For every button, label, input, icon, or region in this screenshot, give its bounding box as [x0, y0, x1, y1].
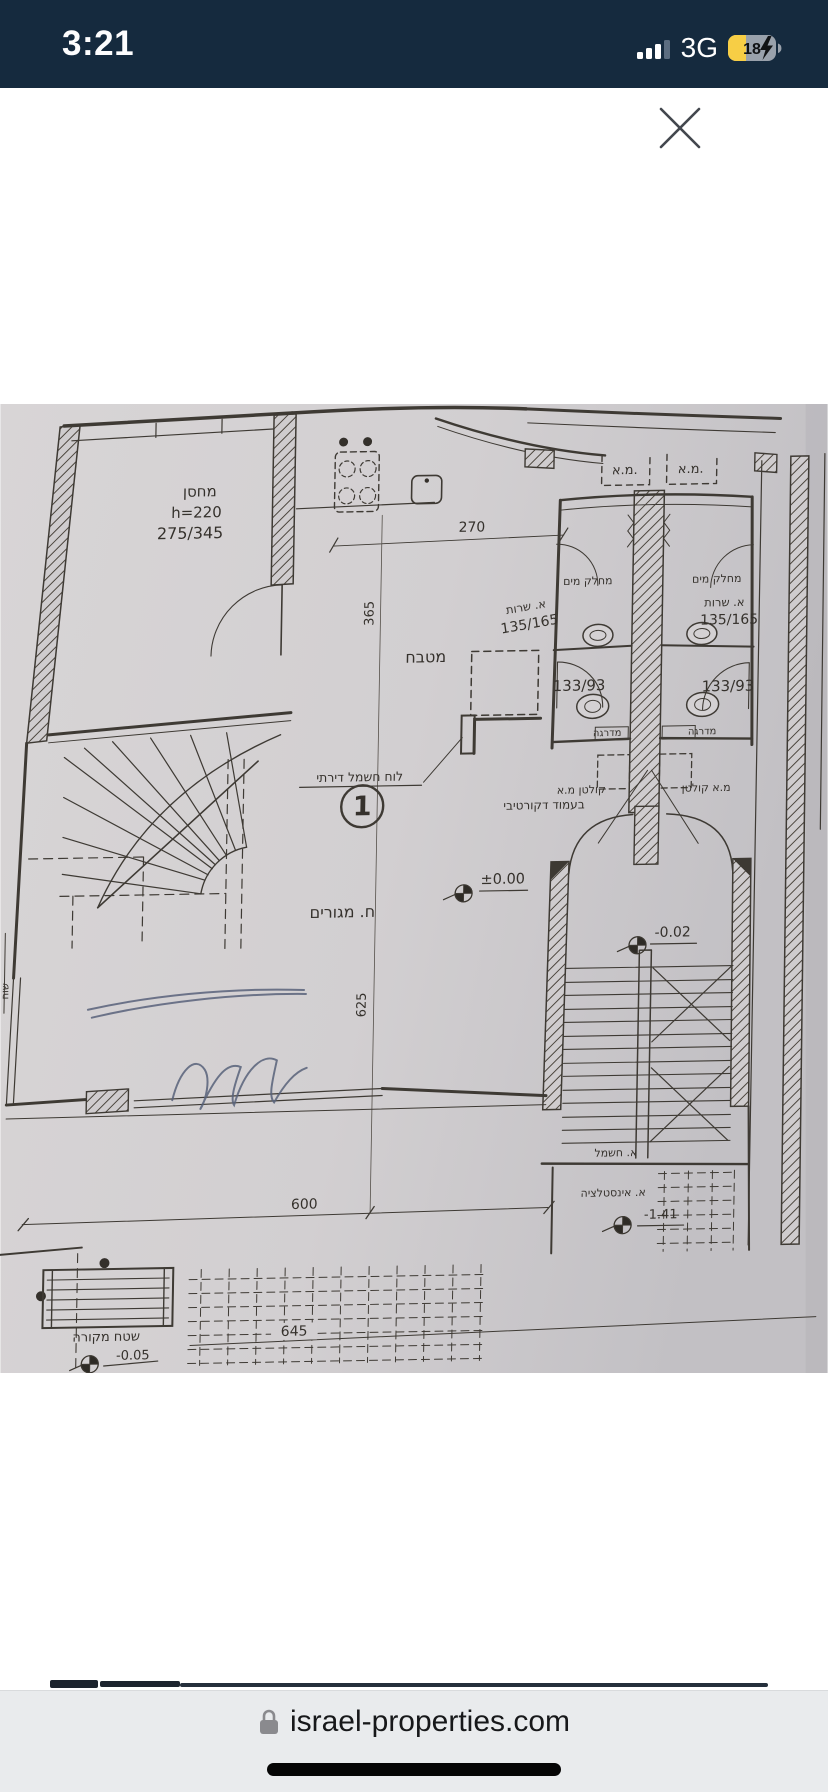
storage-dims: 275/345	[157, 523, 224, 543]
electrical-panel-note: לוח חשמל דירתי	[316, 769, 403, 786]
service-room-right-dims: 135/165	[700, 612, 758, 629]
water-divider-left: מחלק מים	[563, 574, 613, 588]
wall-hatched	[86, 1089, 128, 1114]
dim-625: 625	[355, 992, 370, 1017]
drain-label-right: מ.א קולטן	[682, 781, 731, 795]
room-label-living: ח. מגורים	[309, 902, 375, 922]
level-covered: -0.05	[116, 1348, 150, 1364]
side-note: שוח	[0, 983, 11, 1000]
level-stairwell: -0.02	[654, 924, 690, 941]
browser-bar: israel-properties.com	[0, 1690, 828, 1792]
covered-area-label: שטח מקורה	[72, 1329, 140, 1345]
close-button[interactable]	[652, 100, 708, 156]
drain-label-left: קולטן מ.א	[557, 783, 606, 797]
service-room-right: א. שרות	[704, 595, 745, 610]
page-edge-fragment	[180, 1683, 768, 1687]
ac-label-left: מ.א.	[612, 463, 638, 478]
wall-hatched	[525, 448, 554, 468]
dim-365: 365	[362, 601, 377, 626]
status-bar: 3:21 3G 18	[0, 0, 828, 88]
site-identity[interactable]: israel-properties.com	[0, 1705, 828, 1739]
home-indicator[interactable]	[267, 1763, 561, 1776]
wall-hatched	[729, 858, 753, 1106]
storage-height: h=220	[171, 503, 222, 522]
dim-645: 645	[281, 1324, 308, 1340]
bathroom-left-dims: 133/93	[553, 676, 606, 695]
site-domain: israel-properties.com	[290, 1705, 570, 1739]
battery-percent: 18	[743, 41, 761, 58]
dim-270: 270	[458, 519, 485, 535]
wall-hatched	[271, 414, 296, 585]
plan-paper	[0, 404, 827, 1373]
page-edge-fragment	[50, 1680, 98, 1688]
bathroom-right-dims: 133/93	[701, 677, 754, 696]
level-main: ±0.00	[480, 871, 525, 888]
room-label-storage: מחסן	[183, 482, 217, 501]
level-entry: -1.41	[644, 1207, 678, 1223]
status-time: 3:21	[62, 24, 134, 64]
wall-hatched	[755, 452, 777, 472]
phone-screen: 3:21 3G 18	[0, 0, 828, 1792]
step-label-right: מדרגה	[688, 726, 717, 737]
dim-600: 600	[291, 1196, 318, 1212]
padlock-icon	[258, 1708, 280, 1736]
page-edge-fragment	[100, 1681, 180, 1687]
ac-label-right: מ.א.	[678, 462, 704, 477]
signal-bars-icon	[637, 37, 671, 59]
water-divider-right: מחלק מים	[692, 572, 742, 586]
plan-number: 1	[353, 791, 372, 822]
toilet-icon	[583, 624, 613, 647]
plumbing-closet: א. אינסטלציה	[580, 1186, 645, 1200]
close-icon	[656, 104, 704, 152]
network-type-label: 3G	[681, 32, 718, 64]
battery-charging-icon: 18	[728, 34, 784, 62]
toilet-icon	[577, 694, 609, 719]
electrical-closet: א. חשמל	[594, 1146, 637, 1160]
step-label-left: מדרגה	[593, 728, 622, 739]
decorative-column-note: בעמוד דקורטיבי	[503, 797, 585, 812]
floor-plan-image[interactable]: מחסן h=220 275/345 מטבח 270 365 לוח חשמל…	[0, 404, 828, 1373]
room-label-kitchen: מטבח	[405, 647, 446, 667]
